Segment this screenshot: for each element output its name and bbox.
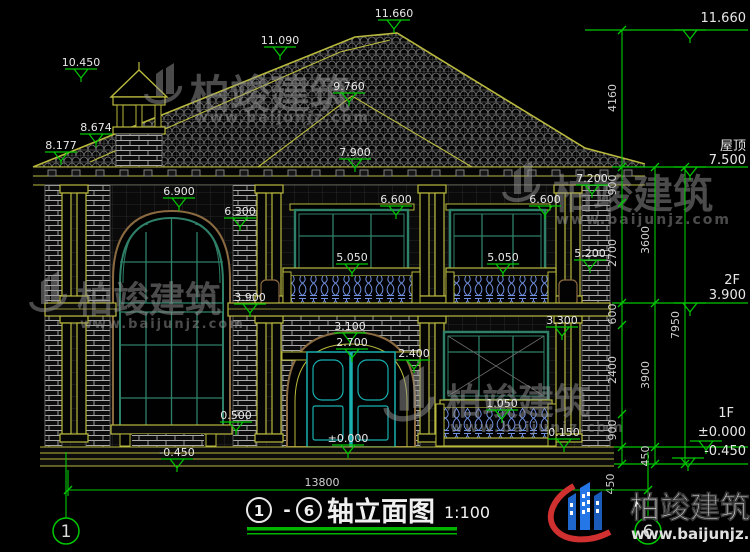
title-block: 1 - 6 轴立面图 1:100 (247, 496, 490, 535)
elev-band-left: 6.900 (163, 185, 195, 198)
dim-3900: 3900 (639, 361, 652, 389)
drawing-scale: 1:100 (444, 503, 490, 522)
dim-450-a: 450 (604, 474, 617, 495)
dim-4160: 4160 (606, 84, 619, 112)
elev-arch-top: 6.300 (224, 205, 256, 218)
elev-sill1f-right: 1.050 (486, 397, 518, 410)
elev-entry-arch: 3.100 (334, 320, 366, 333)
elev-porch: 7.900 (339, 146, 371, 159)
plinth (40, 447, 614, 466)
elev-pier-cap: 2.400 (398, 347, 430, 360)
drawing-title: 轴立面图 (327, 496, 435, 528)
watermark-site: www.baijunjz.com (80, 317, 245, 332)
dim-900-bottom: 900 (606, 420, 619, 441)
watermark-brand: 柏竣建筑 (446, 382, 590, 423)
dim-13800: 13800 (305, 476, 340, 489)
right-level-roof: 7.500 (709, 153, 746, 168)
elev-eave-right: 7.200 (576, 172, 608, 185)
watermark-site: www.baijunjz.com (556, 212, 731, 228)
title-axis-right: 6 (304, 502, 314, 520)
title-underline-thick (247, 527, 457, 531)
elev-transom: 3.900 (234, 291, 266, 304)
elev-sill1f-left: 0.500 (220, 409, 252, 422)
elev-ground-left: -0.450 (159, 446, 194, 459)
dim-2400: 2400 (606, 356, 619, 384)
cad-elevation-sheet: 柏竣建筑 www.baijunjz.com 柏竣建筑 www.baijunjz.… (0, 0, 750, 552)
dim-900-top: 900 (606, 175, 619, 196)
watermark-brand: 柏竣建筑 (77, 280, 221, 321)
right-label-roof: 屋顶 (720, 139, 746, 154)
elev-chimney: 10.450 (62, 56, 101, 69)
title-axis-left: 1 (254, 502, 264, 520)
right-level-1f-zero: ±0.000 (698, 425, 746, 440)
right-label-1f: 1F (718, 406, 734, 421)
elev-entry-inner: 2.700 (336, 336, 368, 349)
elev-ridge-2: 11.090 (261, 34, 300, 47)
elev-balcony-base: 3.300 (546, 314, 578, 327)
balcony-right (446, 268, 556, 303)
elev-sill2f-left: 5.050 (336, 251, 368, 264)
dim-2700: 2700 (606, 239, 619, 267)
watermark-site: www.baijunjz.com (195, 110, 370, 126)
brand-name: 柏竣建筑 (630, 491, 750, 526)
right-level-2f: 3.900 (709, 288, 746, 303)
elev-win2f-right: 6.600 (529, 193, 561, 206)
wall-vent-right (559, 280, 577, 306)
elev-sill2f-right: 5.050 (487, 251, 519, 264)
brand-logo: 柏竣建筑 www.baijunjz.com (551, 482, 750, 543)
elev-eave-left-1: 8.674 (80, 121, 112, 134)
right-level-1f-ground: -0.450 (704, 444, 746, 459)
elev-terrace: 0.150 (548, 426, 580, 439)
elev-win2f-left: 6.600 (380, 193, 412, 206)
elev-hip: 9.760 (333, 80, 365, 93)
dim-600: 600 (606, 304, 619, 325)
title-separator: - (283, 500, 290, 521)
watermark-site: www.baijunjz.com (450, 420, 625, 436)
dim-450-b: 450 (639, 446, 652, 467)
dimension-chains: 4160 900 2700 600 2400 900 450 3600 3900… (604, 26, 689, 495)
elevation-drawing: 柏竣建筑 www.baijunjz.com 柏竣建筑 www.baijunjz.… (0, 0, 750, 552)
title-underline-thin (247, 533, 457, 535)
dim-3600: 3600 (639, 226, 652, 254)
axis-left-number: 1 (61, 522, 72, 542)
elev-rail-right: 5.200 (574, 247, 606, 260)
elev-eave-left-2: 8.177 (45, 139, 77, 152)
elev-apex: 11.660 (375, 7, 414, 20)
dim-7950: 7950 (669, 311, 682, 339)
right-label-2f: 2F (724, 273, 740, 288)
right-level-top: 11.660 (701, 11, 747, 26)
brand-site: www.baijunjz.com (631, 525, 750, 543)
elev-zero: ±0.000 (328, 432, 369, 445)
